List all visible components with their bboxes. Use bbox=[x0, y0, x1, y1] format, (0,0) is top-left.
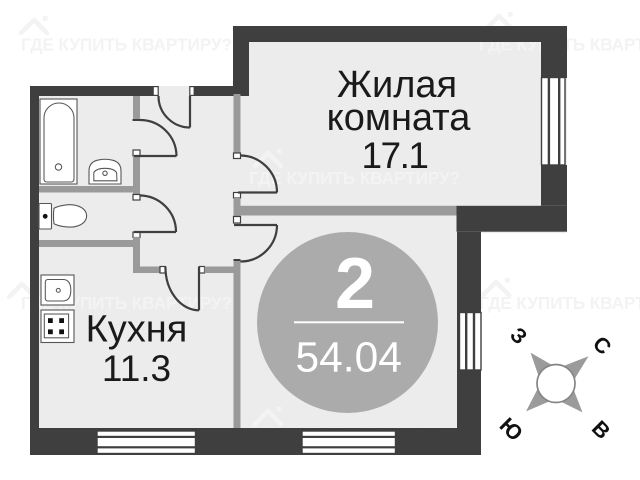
svg-text:ГДЕ КУПИТЬ КВАРТИРУ?: ГДЕ КУПИТЬ КВАРТИРУ? bbox=[249, 168, 460, 188]
svg-text:11.3: 11.3 bbox=[102, 348, 171, 389]
svg-text:ГДЕ КУПИТЬ КВАРТИРУ?: ГДЕ КУПИТЬ КВАРТИРУ? bbox=[21, 35, 232, 55]
svg-text:54.04: 54.04 bbox=[296, 335, 402, 382]
svg-text:Кухня: Кухня bbox=[86, 309, 188, 351]
svg-text:комната: комната bbox=[327, 97, 472, 139]
svg-text:2: 2 bbox=[335, 244, 375, 324]
svg-text:ГДЕ КУПИТЬ КВАРТИРУ?: ГДЕ КУПИТЬ КВАРТИРУ? bbox=[479, 293, 640, 313]
svg-text:17.1: 17.1 bbox=[361, 135, 427, 176]
